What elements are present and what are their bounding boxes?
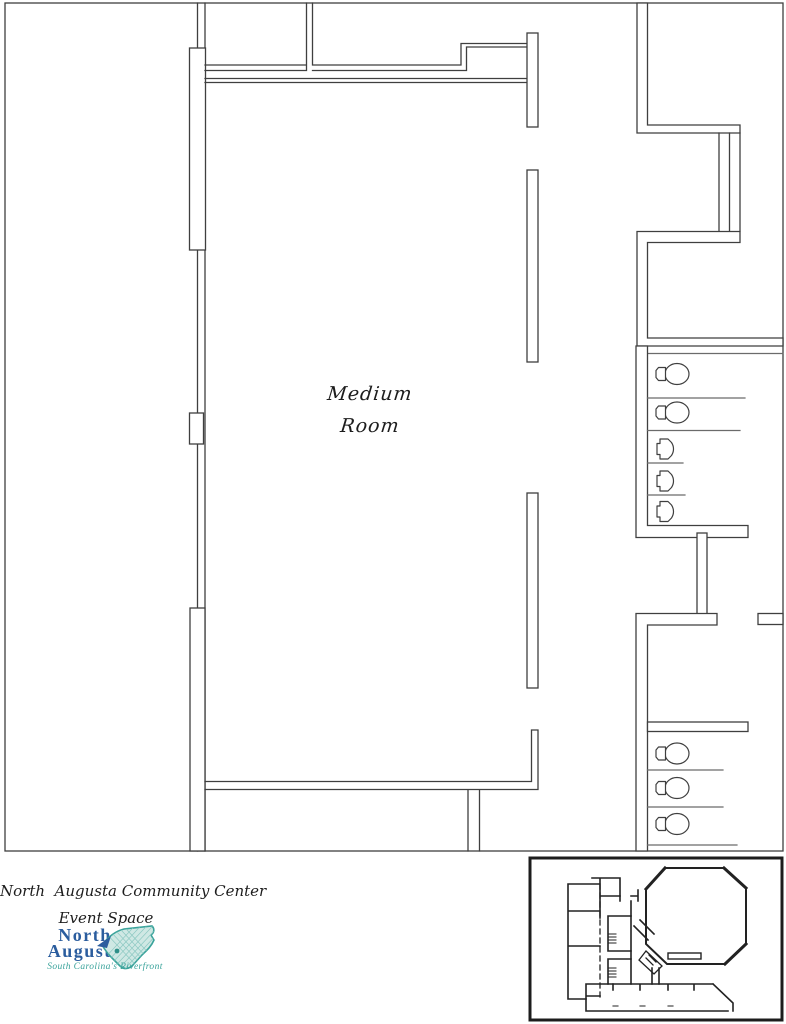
right-wall-mid (637, 232, 783, 347)
toilet-icon (656, 778, 689, 799)
wall-pier (527, 170, 538, 362)
upper-restroom-wall (636, 346, 748, 538)
right-wall-upper (637, 3, 740, 133)
lower-restroom-top-wall (648, 722, 749, 732)
wall-pier (190, 413, 204, 444)
top-walls (205, 3, 527, 71)
north-augusta-logo: North Augusta South Carolina's Riverfron… (30, 922, 180, 984)
wall-pier (527, 33, 538, 127)
urinal-icon (657, 439, 674, 459)
corridor-wall (697, 533, 707, 615)
wall-pier (527, 493, 538, 688)
toilet-icon (656, 402, 689, 423)
drawing-title: North Augusta Community Center (0, 882, 212, 900)
medium-room-top-wall (205, 79, 527, 83)
toilet-icon (656, 743, 689, 764)
medium-room-label-line1: Medium (294, 383, 446, 405)
stair-chase-lines (719, 133, 740, 231)
logo-tagline: South Carolina's Riverfront (30, 962, 180, 972)
medium-room-bottom-wall (205, 730, 538, 851)
toilet-icon (656, 364, 689, 385)
wall-pier (190, 48, 206, 250)
toilet-icon (656, 814, 689, 835)
inset-overview-map (528, 856, 785, 1024)
medium-room-label-line2: Room (294, 415, 446, 437)
wall-pier (190, 608, 205, 851)
urinal-icon (657, 502, 674, 522)
urinal-icon (657, 471, 674, 491)
wall-stub (758, 614, 783, 625)
